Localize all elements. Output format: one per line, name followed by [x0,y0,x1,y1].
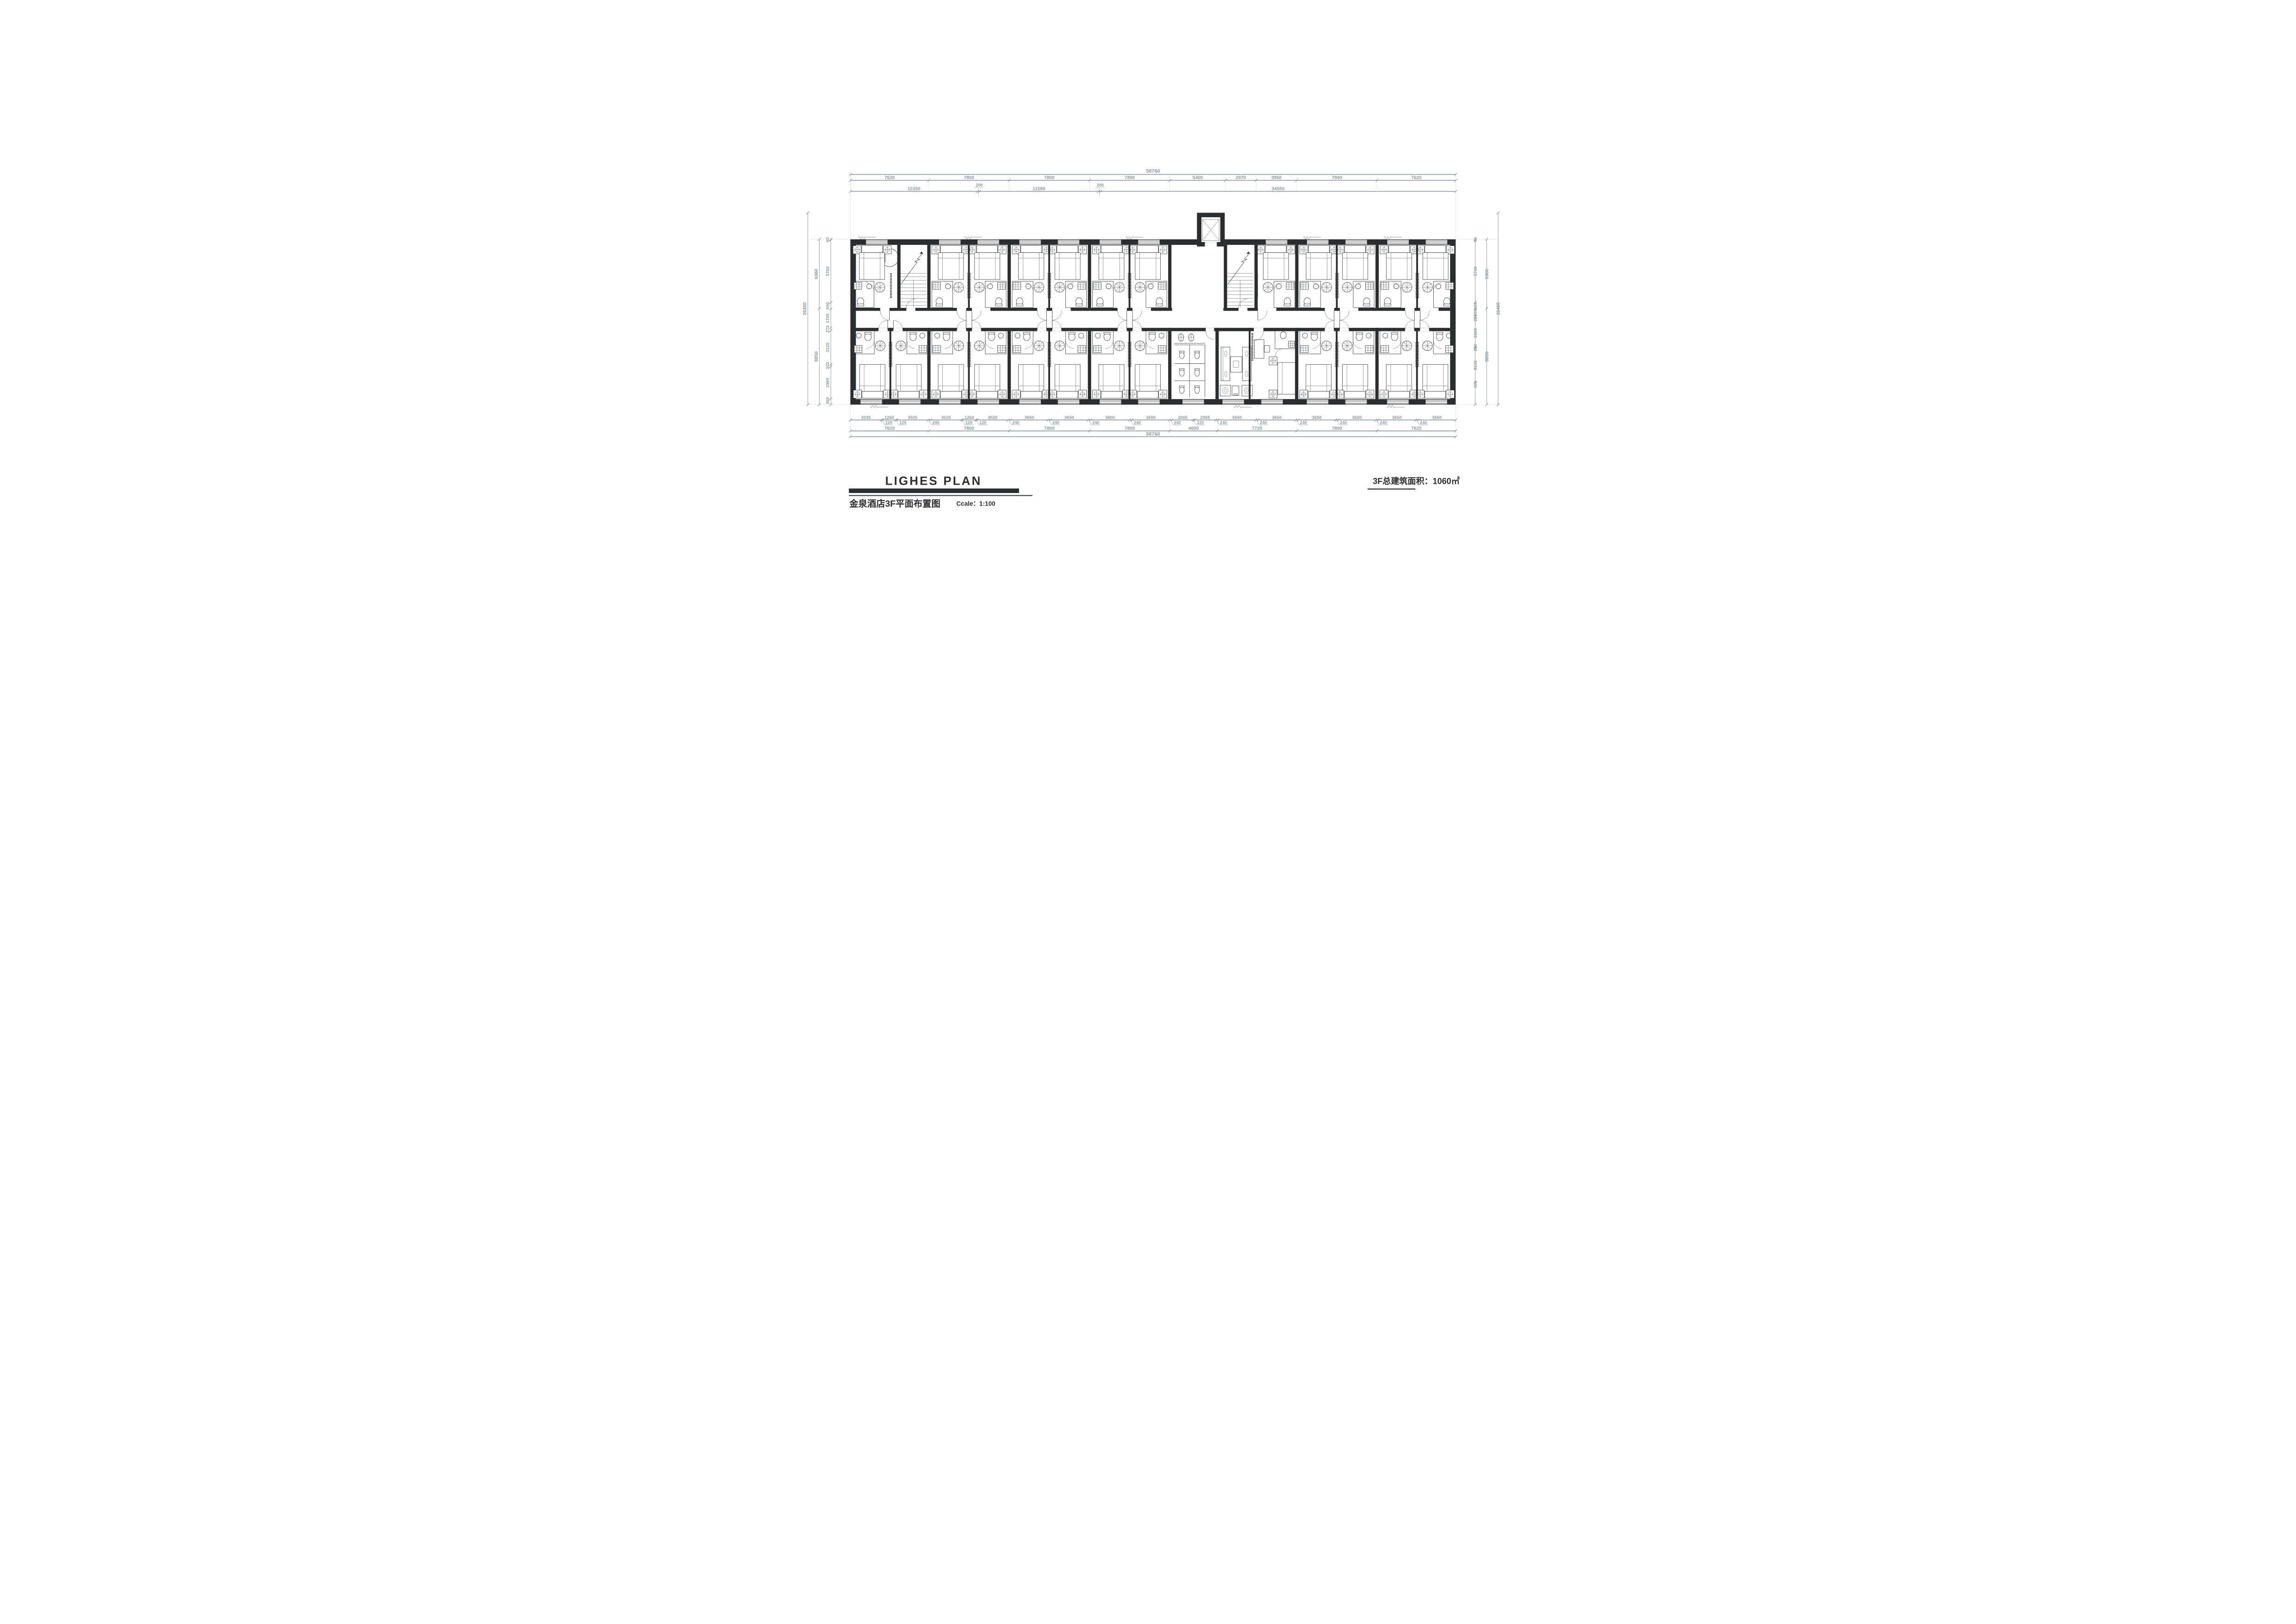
dim-label: 240 [1420,420,1427,425]
partition-wall [1375,328,1378,399]
door-opening [981,308,990,311]
title-block: LIGHES PLAN 金泉酒店3F平面布置图 Ccale：1:100 [849,475,1033,509]
door-opening [878,328,888,331]
curtain-symbol [1387,405,1404,408]
guest-room [853,330,891,398]
dim-label: 11580 [1033,187,1045,192]
door-arc [1257,311,1267,320]
dim-label: 600 [1473,302,1478,310]
partition-wall [1254,245,1257,308]
partition-wall [1048,328,1050,399]
exterior-wall-right [1450,239,1456,405]
sheet-title: LIGHES PLAN [885,475,982,488]
title-bar [849,488,1019,493]
dim-label: 240 [1134,420,1141,425]
dim-label: 2065 [1200,415,1210,420]
drawing-sheet: 5876076207800780078005400297039507800762… [778,0,1518,524]
dim-label: 7800 [1044,426,1055,431]
guest-room [968,245,1006,307]
guest-room [1336,330,1374,398]
door-opening [1339,328,1349,331]
area-note: 3F总建筑面积：1060㎡ [1373,476,1460,486]
dim-label: 3650 [1312,415,1322,420]
guest-room [1380,245,1419,307]
guest-room [889,330,927,398]
door-opening [1267,308,1276,311]
door-opening [1420,308,1429,311]
door-arc [1254,331,1263,341]
desk [1254,340,1264,358]
dim-line [896,420,898,425]
dim-label: 3650 [1024,415,1034,420]
dim-label: 58760 [1146,169,1160,174]
dim-label: 7800 [964,426,974,431]
door-opening [1141,308,1151,311]
dim-label: 8850 [1484,351,1489,362]
stairwell-left [900,251,926,308]
area-note-block: 3F总建筑面积：1060㎡ [1367,476,1459,490]
door-opening [1052,308,1061,311]
curtain-symbol [964,237,982,239]
dim-label: 2065 [1177,415,1187,420]
coffee-table [1230,356,1242,372]
door-opening [1037,328,1046,331]
title-rule [849,495,1033,496]
dim-label: 2970 [1235,175,1246,181]
dim-label: 240 [1260,420,1267,425]
dim-label: 7800 [1124,426,1135,431]
dim-label: 6360 [1484,269,1489,279]
partition-wall [1295,245,1298,308]
partition-wall [1295,328,1298,399]
door-arc [1339,311,1349,320]
door-opening [1037,308,1046,311]
guest-room [1128,245,1167,307]
corridor-wall-bottom [853,328,1450,331]
dim-label: 120 [979,420,986,425]
door-arc [1052,311,1061,320]
dim-label: 3025 [908,415,917,420]
guest-room [1257,245,1295,307]
dim-label: 240 [1092,420,1099,425]
dim-label: 3150 [1473,361,1478,370]
door-opening [893,328,902,331]
elevator-door-opening [1205,242,1217,247]
dim-label: 3650 [1146,415,1156,420]
partition-wall [1416,245,1418,308]
door-opening [1325,308,1334,311]
dim-label: 7800 [964,175,974,181]
partition-wall [1416,328,1418,399]
door-opening [1254,328,1263,331]
door-opening [1349,308,1358,311]
dim-label: 3650 [1272,415,1282,420]
dim-label: 240 [1340,420,1347,425]
dim-label: 2960 [825,378,830,387]
dim-label: 600 [825,302,830,310]
dim-label: 3020 [941,415,951,420]
dim-label: 7620 [1411,175,1422,181]
guest-room [1012,330,1051,398]
dim-label: 7800 [1044,175,1055,181]
door-opening [880,308,889,311]
dim-label: 3650 [1432,415,1442,420]
dim-label: 7800 [1332,175,1342,181]
guest-room [1012,245,1051,307]
dim-label: 3650 [1232,415,1242,420]
door-arc [880,311,889,320]
dim-label: 12350 [907,187,920,192]
dim-label: 360 [825,397,830,405]
partition-wall [1375,245,1379,308]
partition-wall [1336,328,1338,399]
stairwell-center [1227,251,1253,308]
partition-wall [889,328,891,399]
dim-label: 8850 [814,351,819,362]
corridor-wall-top [853,308,1450,311]
partition-wall [1168,328,1171,399]
dim-label: 200 [1097,183,1104,187]
door-arc [1405,311,1414,320]
dim-label: 26400 [802,302,807,315]
dim-line [882,420,884,425]
urinals [1174,334,1205,344]
dim-line [976,420,978,425]
elevator-shaft [1199,215,1222,247]
partition-wall [1128,328,1130,399]
curtain-symbol [1303,237,1321,239]
dim-label: 34550 [1271,187,1284,192]
curtain-symbol [870,405,888,408]
door-opening [1132,328,1141,331]
dim-label: 120 [1197,420,1204,425]
partition-wall [1336,245,1338,308]
door-opening [1117,308,1126,311]
door-arc [957,311,966,320]
guest-room [1048,330,1087,398]
partition-wall [897,245,900,308]
dim-label: 3650 [1352,415,1362,420]
guest-room [1416,330,1454,398]
partition-wall [1008,245,1011,308]
dim-label: 58760 [1146,431,1160,437]
door-opening [1061,308,1070,311]
dim-label: 240 [1300,420,1307,425]
partition-wall [1224,245,1227,308]
dim-label: 7620 [884,426,895,431]
door-opening [1238,308,1247,311]
door-opening [1206,328,1214,331]
dim-label: 240 [1012,420,1019,425]
dim-label: 7800 [1124,175,1135,181]
door-opening [1132,308,1141,311]
door-arc [1325,311,1334,320]
scale-label: Ccale：1:100 [956,500,995,507]
dim-label: 1260 [964,415,974,420]
partition-wall [1008,328,1011,399]
guest-room [1300,245,1338,307]
dim-label: 3650 [1392,415,1401,420]
dim-label: 5400 [1192,175,1203,181]
door-opening [1420,328,1429,331]
dim-label: 7800 [1332,426,1342,431]
door-arc [906,299,915,308]
partition-wall [927,245,930,308]
door-arc [971,311,981,320]
door-opening [1405,308,1414,311]
partition-wall [1048,245,1050,308]
dim-label: 4600 [1188,426,1199,431]
door-arc [1117,311,1126,320]
guest-room [1092,245,1131,307]
dim-label: 3020 [988,415,997,420]
door-opening [1257,308,1267,311]
door-arc [1132,311,1141,320]
elevator-lobby-opening [1172,307,1223,312]
dim-label: 3800 [1105,415,1115,420]
partition-wall [1088,245,1091,308]
public-restroom [1174,334,1205,397]
guest-room [932,330,970,398]
guest-room [1048,245,1087,307]
dim-label: 5760 [825,267,830,276]
door-arc [1238,299,1247,308]
desk-chair [1264,346,1269,352]
guest-room [1128,330,1167,398]
dim-label: 2600 [1473,328,1478,338]
dim-label: 120 [965,420,972,425]
door-arc [1037,311,1046,320]
door-arc [1206,331,1214,339]
curtain-symbol [1126,237,1143,239]
lounge-area [1220,347,1252,396]
dim-label: 240 [1174,420,1181,425]
curtain-symbol [1234,405,1251,408]
door-opening [1117,328,1126,331]
suite-bed [1277,362,1295,394]
partition-wall [1168,245,1171,308]
partition-wall [1088,328,1091,399]
dim-label: 3120 [825,343,830,352]
suite-room [1249,328,1296,399]
door-opening [957,308,966,311]
dim-label: 125 [899,420,906,425]
guest-room [1300,330,1338,398]
door-arc [1420,311,1429,320]
guest-room [932,245,970,307]
exterior-wall-left [850,239,856,405]
door-opening [971,328,981,331]
floor-plan-svg: 5876076207800780078005400297039507800762… [778,0,1518,524]
door-opening [1405,328,1414,331]
partition-wall [968,245,970,308]
dim-label: 60 [825,237,830,242]
door-opening [1429,308,1438,311]
door-opening [1052,328,1061,331]
dim-label: 1700 [825,313,830,323]
guest-room [1380,330,1418,398]
dim-label: 6360 [814,269,819,279]
area-note-rule [1367,488,1415,489]
guest-room [1092,330,1131,398]
dim-label: 1260 [884,415,894,420]
dim-label: 5760 [1473,267,1478,276]
dim-label: 3650 [1064,415,1074,420]
partition-wall [1128,245,1130,308]
curtain-symbol [1384,237,1401,239]
door-opening [906,308,915,311]
guest-rooms [853,245,1454,398]
sheet-subtitle: 金泉酒店3F平面布置图 [849,499,940,509]
dim-label: 240 [1380,420,1387,425]
dim-label: 26400 [1496,302,1501,315]
door-opening [1339,308,1349,311]
dim-label: 7620 [884,175,895,181]
dim-label: 7720 [1252,426,1263,431]
curtain-symbol [859,237,876,239]
dim-label: 3950 [1271,175,1282,181]
dim-label: 120 [885,420,892,425]
dim-label: 3030 [861,415,871,420]
partition-wall [968,328,970,399]
door-opening [971,308,981,311]
partition-wall [1215,328,1219,399]
dim-label: 240 [1220,420,1227,425]
door-opening [957,328,966,331]
dim-label: 7620 [1411,426,1422,431]
guest-room [1416,245,1455,307]
partition-wall [927,328,930,399]
dim-label: 240 [1052,420,1059,425]
guest-room [968,330,1006,398]
dim-line [962,420,964,425]
guest-room [1336,245,1374,307]
dim-label: 200 [976,183,983,187]
dim-line [1194,420,1196,425]
dim-label: 240 [932,420,939,425]
door-opening [1325,328,1334,331]
